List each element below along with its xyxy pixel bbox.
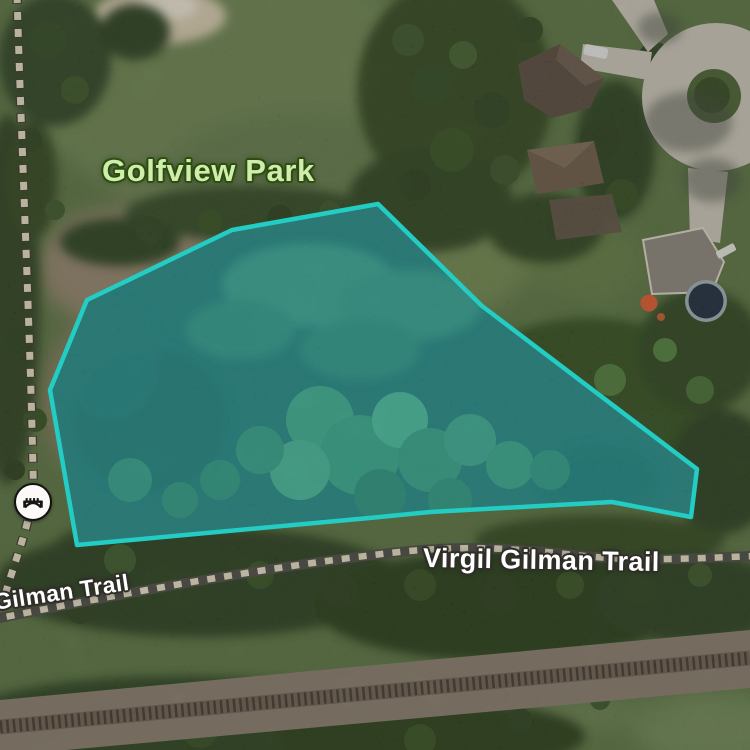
bridge-icon (20, 489, 46, 515)
bridge-poi[interactable] (14, 483, 52, 521)
satellite-map[interactable]: Golfview Park Virgil Gilman Trail Gilman… (0, 0, 750, 750)
aerial-scene (0, 0, 750, 750)
